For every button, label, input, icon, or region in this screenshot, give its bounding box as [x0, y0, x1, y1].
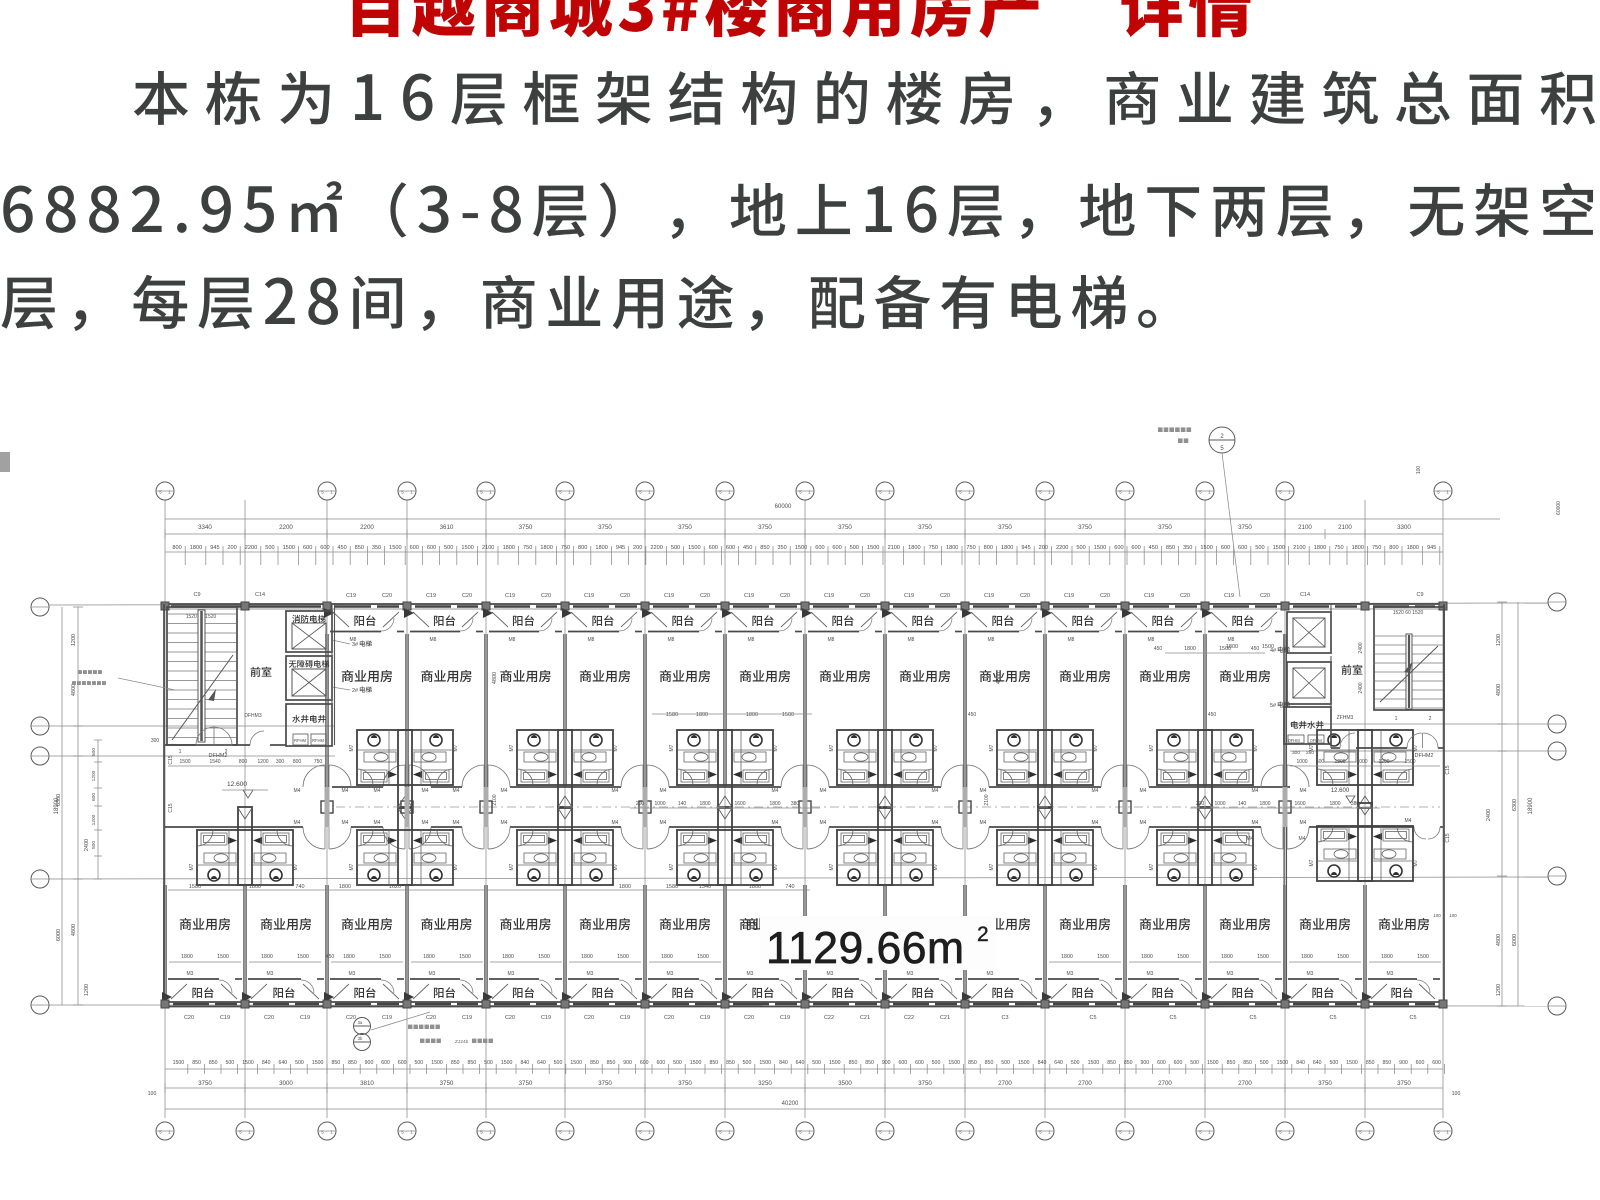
- svg-text:1500: 1500: [431, 1060, 443, 1066]
- svg-text:M8: M8: [828, 637, 835, 643]
- svg-text:1500: 1500: [1346, 1060, 1358, 1066]
- svg-text:2: 2: [1429, 716, 1432, 722]
- svg-text:C20: C20: [426, 1015, 436, 1021]
- svg-text:2100: 2100: [888, 545, 900, 551]
- svg-text:M4: M4: [453, 820, 460, 826]
- svg-text:M7: M7: [613, 744, 619, 751]
- svg-text:M4: M4: [422, 788, 429, 794]
- svg-text:5: 5: [1220, 446, 1224, 452]
- svg-text:850: 850: [1227, 1060, 1236, 1066]
- svg-text:C20: C20: [584, 1015, 594, 1021]
- svg-text:1620: 1620: [389, 884, 401, 890]
- svg-text:C20: C20: [700, 593, 710, 599]
- svg-text:3750: 3750: [1397, 1080, 1411, 1087]
- svg-text:M4: M4: [1300, 788, 1307, 794]
- svg-text:1500: 1500: [501, 1060, 513, 1066]
- svg-text:M8: M8: [988, 637, 995, 643]
- svg-text:945: 945: [1427, 545, 1436, 551]
- svg-text:1500: 1500: [1207, 1060, 1219, 1066]
- svg-text:500: 500: [295, 1060, 304, 1066]
- svg-text:5: 5: [239, 1130, 242, 1135]
- svg-text:600: 600: [1432, 1060, 1441, 1066]
- svg-text:1800: 1800: [661, 954, 673, 960]
- svg-text:4800: 4800: [996, 672, 1002, 684]
- svg-text:M8: M8: [430, 637, 437, 643]
- svg-text:3810: 3810: [360, 1080, 374, 1087]
- svg-text:1: 1: [1128, 1130, 1131, 1135]
- svg-text:C19: C19: [505, 593, 515, 599]
- svg-text:M8: M8: [908, 637, 915, 643]
- svg-text:5: 5: [799, 1130, 802, 1135]
- svg-text:500: 500: [225, 1060, 234, 1066]
- svg-text:1500: 1500: [312, 1060, 324, 1066]
- svg-text:800: 800: [172, 545, 181, 551]
- svg-text:3500: 3500: [838, 1080, 852, 1087]
- svg-text:C9: C9: [1416, 592, 1423, 598]
- svg-text:3750: 3750: [519, 524, 533, 531]
- svg-text:100: 100: [1416, 466, 1422, 475]
- svg-text:640: 640: [537, 1060, 546, 1066]
- svg-text:3b: 3b: [358, 1036, 363, 1041]
- svg-text:1800: 1800: [1407, 545, 1419, 551]
- svg-text:600: 600: [381, 1060, 390, 1066]
- svg-text:C19: C19: [744, 593, 754, 599]
- svg-text:C15: C15: [168, 803, 174, 812]
- svg-text:M4: M4: [501, 820, 508, 826]
- svg-text:1800: 1800: [503, 545, 515, 551]
- svg-text:1: 1: [1208, 490, 1211, 495]
- svg-text:1: 1: [808, 490, 811, 495]
- svg-text:850: 850: [607, 1060, 616, 1066]
- svg-text:M4: M4: [1300, 820, 1307, 826]
- svg-text:1500: 1500: [173, 1060, 185, 1066]
- svg-text:C20: C20: [780, 593, 790, 599]
- svg-text:100: 100: [1449, 913, 1457, 918]
- svg-text:850: 850: [331, 1060, 340, 1066]
- svg-text:0FHM: 0FHM: [1310, 738, 1322, 743]
- svg-text:1800: 1800: [339, 884, 351, 890]
- svg-text:C19: C19: [462, 1015, 472, 1021]
- svg-text:1500: 1500: [1097, 954, 1109, 960]
- svg-text:C19: C19: [346, 593, 356, 599]
- svg-text:1800: 1800: [1301, 954, 1313, 960]
- svg-text:5: 5: [719, 490, 722, 495]
- svg-text:1800: 1800: [261, 954, 273, 960]
- svg-text:450: 450: [743, 545, 752, 551]
- svg-text:M4: M4: [932, 788, 939, 794]
- svg-text:1: 1: [489, 490, 492, 495]
- svg-text:M7: M7: [1253, 863, 1259, 870]
- svg-text:M4: M4: [612, 788, 619, 794]
- svg-text:1500: 1500: [242, 1060, 254, 1066]
- svg-text:M4: M4: [612, 820, 619, 826]
- svg-text:600: 600: [1238, 545, 1247, 551]
- svg-text:850: 850: [1166, 545, 1175, 551]
- svg-text:M3: M3: [429, 971, 436, 977]
- svg-text:2200: 2200: [360, 524, 374, 531]
- svg-text:1: 1: [1128, 490, 1131, 495]
- svg-text:C15: C15: [168, 755, 174, 764]
- svg-text:1800: 1800: [343, 954, 355, 960]
- svg-text:5#: 5#: [1270, 703, 1277, 709]
- svg-text:5: 5: [959, 1130, 962, 1135]
- svg-text:3750: 3750: [758, 524, 772, 531]
- svg-text:C20: C20: [1020, 593, 1030, 599]
- svg-text:M7: M7: [349, 744, 355, 751]
- svg-text:600: 600: [398, 1060, 407, 1066]
- svg-text:2700: 2700: [998, 1080, 1012, 1087]
- svg-text:1500: 1500: [379, 954, 391, 960]
- svg-text:2400: 2400: [84, 839, 90, 851]
- svg-text:5: 5: [1359, 1130, 1362, 1135]
- svg-text:740: 740: [295, 884, 304, 890]
- svg-text:1500: 1500: [1219, 646, 1231, 652]
- svg-text:840: 840: [1296, 1060, 1305, 1066]
- svg-text:1600: 1600: [1294, 801, 1305, 807]
- svg-text:1800: 1800: [540, 545, 552, 551]
- svg-text:850: 850: [849, 1060, 858, 1066]
- svg-text:3750: 3750: [838, 524, 852, 531]
- svg-text:60000: 60000: [775, 504, 792, 510]
- svg-text:5: 5: [879, 1130, 882, 1135]
- svg-text:C19: C19: [1064, 593, 1074, 599]
- svg-text:740: 740: [785, 884, 794, 890]
- svg-text:C5: C5: [1169, 1015, 1176, 1021]
- svg-text:C20: C20: [505, 1015, 515, 1021]
- svg-text:M4: M4: [1140, 820, 1147, 826]
- svg-text:M8: M8: [748, 637, 755, 643]
- svg-text:2200: 2200: [650, 545, 662, 551]
- svg-text:1800: 1800: [595, 545, 607, 551]
- svg-text:1200: 1200: [84, 984, 90, 996]
- svg-text:500: 500: [91, 748, 97, 756]
- svg-text:0FHM: 0FHM: [1288, 738, 1300, 743]
- svg-text:3750: 3750: [918, 1080, 932, 1087]
- svg-text:5: 5: [321, 490, 324, 495]
- svg-text:1800: 1800: [749, 884, 761, 890]
- svg-text:M3: M3: [1227, 971, 1234, 977]
- svg-text:2100: 2100: [492, 794, 498, 805]
- svg-text:850: 850: [726, 1060, 735, 1066]
- svg-text:1500: 1500: [688, 545, 700, 551]
- svg-text:C20: C20: [346, 1015, 356, 1021]
- svg-text:450: 450: [968, 712, 977, 718]
- svg-text:M4: M4: [374, 820, 381, 826]
- svg-text:850: 850: [451, 1060, 460, 1066]
- svg-text:1800: 1800: [1221, 954, 1233, 960]
- svg-text:C19: C19: [541, 1015, 551, 1021]
- svg-text:600: 600: [1221, 545, 1230, 551]
- svg-text:1: 1: [648, 490, 651, 495]
- svg-text:1500: 1500: [782, 712, 794, 718]
- svg-text:850: 850: [968, 1060, 977, 1066]
- svg-text:2100: 2100: [1338, 524, 1352, 531]
- svg-text:1: 1: [1288, 490, 1291, 495]
- svg-text:850: 850: [1124, 1060, 1133, 1066]
- svg-text:3a: 3a: [358, 1020, 363, 1025]
- svg-text:C9: C9: [193, 592, 200, 598]
- svg-text:5: 5: [480, 1130, 483, 1135]
- svg-text:600: 600: [1174, 1060, 1183, 1066]
- svg-text:800: 800: [1389, 545, 1398, 551]
- svg-text:1: 1: [968, 490, 971, 495]
- svg-text:450: 450: [326, 954, 335, 960]
- svg-text:C22: C22: [824, 1015, 834, 1021]
- svg-text:200: 200: [1196, 801, 1205, 807]
- svg-text:640: 640: [796, 1060, 805, 1066]
- svg-text:1500: 1500: [1337, 954, 1349, 960]
- svg-text:M7: M7: [293, 863, 299, 870]
- svg-text:850: 850: [209, 1060, 218, 1066]
- svg-text:850: 850: [192, 1060, 201, 1066]
- svg-text:M4: M4: [772, 788, 779, 794]
- svg-text:1: 1: [1208, 1130, 1211, 1135]
- svg-text:M7: M7: [1413, 859, 1419, 866]
- svg-text:3250: 3250: [758, 1080, 772, 1087]
- svg-text:3610: 3610: [440, 524, 454, 531]
- svg-text:C21: C21: [940, 1015, 950, 1021]
- svg-text:4800: 4800: [1496, 684, 1502, 696]
- svg-text:M7: M7: [669, 744, 675, 751]
- svg-text:3750: 3750: [198, 1080, 212, 1087]
- svg-text:C20: C20: [1180, 593, 1190, 599]
- svg-text:1540: 1540: [209, 759, 220, 765]
- svg-text:M7: M7: [669, 863, 675, 870]
- svg-text:3750: 3750: [1318, 1080, 1332, 1087]
- svg-text:750: 750: [1334, 545, 1343, 551]
- svg-text:1500: 1500: [179, 759, 190, 765]
- svg-text:1: 1: [888, 490, 891, 495]
- svg-text:1500: 1500: [1177, 954, 1189, 960]
- svg-text:M4: M4: [1092, 820, 1099, 826]
- svg-text:M7: M7: [1253, 744, 1259, 751]
- svg-text:6300: 6300: [1512, 799, 1518, 811]
- svg-text:640: 640: [278, 1060, 287, 1066]
- svg-text:300: 300: [151, 738, 160, 744]
- svg-text:600: 600: [898, 1060, 907, 1066]
- svg-text:C19: C19: [620, 1015, 630, 1021]
- svg-text:850: 850: [760, 545, 769, 551]
- svg-text:945: 945: [210, 545, 219, 551]
- svg-text:100: 100: [148, 1091, 157, 1097]
- svg-text:3750: 3750: [918, 524, 932, 531]
- svg-text:1500: 1500: [1277, 1060, 1289, 1066]
- svg-text:1800: 1800: [190, 545, 202, 551]
- svg-text:1: 1: [330, 1130, 333, 1135]
- svg-text:1500: 1500: [948, 1060, 960, 1066]
- svg-text:M4: M4: [453, 788, 460, 794]
- svg-text:5: 5: [799, 490, 802, 495]
- svg-text:1: 1: [1048, 490, 1051, 495]
- svg-text:5: 5: [1039, 490, 1042, 495]
- svg-text:1500: 1500: [690, 1060, 702, 1066]
- svg-text:5: 5: [1279, 490, 1282, 495]
- svg-text:C20: C20: [382, 593, 392, 599]
- svg-text:1800: 1800: [1381, 954, 1393, 960]
- svg-text:1340: 1340: [699, 884, 711, 890]
- svg-text:1500: 1500: [1018, 1060, 1030, 1066]
- svg-text:1: 1: [248, 1130, 251, 1135]
- svg-text:500: 500: [1076, 545, 1085, 551]
- svg-text:850: 850: [1382, 1060, 1391, 1066]
- svg-text:C22: C22: [904, 1015, 914, 1021]
- svg-text:945: 945: [616, 545, 625, 551]
- svg-text:100: 100: [1433, 913, 1441, 918]
- svg-text:M8: M8: [509, 637, 516, 643]
- svg-text:250: 250: [1306, 750, 1314, 756]
- svg-text:1000: 1000: [1296, 759, 1307, 765]
- svg-text:840: 840: [779, 1060, 788, 1066]
- svg-text:2400: 2400: [1358, 682, 1364, 693]
- svg-text:3750: 3750: [598, 1080, 612, 1087]
- svg-text:1500: 1500: [459, 954, 471, 960]
- svg-text:6300: 6300: [56, 794, 62, 806]
- svg-text:1200: 1200: [91, 770, 97, 781]
- svg-text:1800: 1800: [1314, 545, 1326, 551]
- svg-text:500: 500: [554, 1060, 563, 1066]
- svg-text:C19: C19: [1144, 593, 1154, 599]
- svg-text:C3: C3: [1001, 1015, 1008, 1021]
- svg-text:2#: 2#: [352, 688, 359, 694]
- svg-text:1800: 1800: [908, 545, 920, 551]
- svg-text:C15: C15: [1445, 833, 1451, 842]
- svg-text:M7: M7: [1149, 863, 1155, 870]
- svg-text:1800: 1800: [769, 801, 780, 807]
- svg-text:M7: M7: [773, 744, 779, 751]
- svg-text:1500: 1500: [867, 545, 879, 551]
- svg-text:3750: 3750: [1078, 524, 1092, 531]
- svg-text:M8: M8: [668, 637, 675, 643]
- svg-text:900: 900: [1399, 1060, 1408, 1066]
- svg-text:M7: M7: [829, 744, 835, 751]
- svg-text:900: 900: [365, 1060, 374, 1066]
- svg-text:2100: 2100: [1298, 524, 1312, 531]
- svg-text:640: 640: [1313, 1060, 1322, 1066]
- svg-text:3750: 3750: [998, 524, 1012, 531]
- svg-text:18900: 18900: [1528, 797, 1534, 814]
- svg-text:RFHM: RFHM: [312, 738, 325, 743]
- svg-text:1500: 1500: [217, 954, 229, 960]
- svg-text:500: 500: [1071, 1060, 1080, 1066]
- svg-text:5: 5: [959, 490, 962, 495]
- svg-text:M4: M4: [660, 788, 667, 794]
- svg-text:1800: 1800: [619, 884, 631, 890]
- svg-text:M7: M7: [773, 863, 779, 870]
- svg-text:500: 500: [91, 841, 97, 849]
- svg-text:750: 750: [561, 545, 570, 551]
- svg-text:500: 500: [444, 545, 453, 551]
- svg-text:C19: C19: [664, 593, 674, 599]
- svg-text:5: 5: [159, 490, 162, 495]
- svg-text:C5: C5: [1409, 1015, 1416, 1021]
- svg-text:1: 1: [489, 1130, 492, 1135]
- svg-text:1800: 1800: [699, 801, 710, 807]
- svg-text:M4: M4: [1405, 818, 1412, 824]
- svg-text:M4: M4: [342, 820, 349, 826]
- svg-text:500: 500: [812, 1060, 821, 1066]
- svg-text:M4: M4: [342, 788, 349, 794]
- svg-text:500: 500: [1190, 1060, 1199, 1066]
- svg-text:M7: M7: [1149, 744, 1155, 751]
- svg-text:M4: M4: [1092, 788, 1099, 794]
- svg-text:1000: 1000: [654, 801, 665, 807]
- svg-text:M8: M8: [1068, 637, 1075, 643]
- svg-text:945: 945: [1021, 545, 1030, 551]
- svg-text:3340: 3340: [198, 524, 212, 531]
- svg-text:M7: M7: [1093, 744, 1099, 751]
- svg-text:600: 600: [815, 545, 824, 551]
- svg-text:C19: C19: [824, 593, 834, 599]
- svg-text:600: 600: [832, 545, 841, 551]
- svg-text:4800: 4800: [71, 684, 77, 696]
- svg-text:1500: 1500: [1094, 545, 1106, 551]
- svg-text:ZFHM3: ZFHM3: [1337, 715, 1354, 721]
- svg-text:6000: 6000: [1512, 934, 1518, 946]
- svg-text:2700: 2700: [1238, 1080, 1252, 1087]
- svg-text:500: 500: [1329, 1060, 1338, 1066]
- svg-text:M4: M4: [501, 788, 508, 794]
- svg-text:M8: M8: [1228, 637, 1235, 643]
- svg-text:1520 60 1520: 1520 60 1520: [1393, 610, 1424, 616]
- svg-text:450: 450: [1154, 646, 1163, 652]
- svg-text:1200: 1200: [257, 759, 268, 765]
- svg-text:1500: 1500: [283, 545, 295, 551]
- svg-text:M7: M7: [349, 863, 355, 870]
- svg-text:200: 200: [636, 801, 645, 807]
- svg-text:1500: 1500: [389, 545, 401, 551]
- svg-text:6000: 6000: [56, 929, 62, 941]
- svg-text:M3: M3: [1147, 971, 1154, 977]
- svg-text:2200: 2200: [279, 524, 293, 531]
- svg-text:5: 5: [1039, 1130, 1042, 1135]
- svg-text:850: 850: [1366, 1060, 1375, 1066]
- svg-text:C20: C20: [1260, 593, 1270, 599]
- svg-text:850: 850: [467, 1060, 476, 1066]
- svg-text:3300: 3300: [1397, 524, 1411, 531]
- svg-text:1800: 1800: [746, 712, 758, 718]
- svg-text:1500: 1500: [795, 545, 807, 551]
- svg-text:5: 5: [1199, 1130, 1202, 1135]
- svg-text:450: 450: [337, 545, 346, 551]
- svg-text:5: 5: [879, 490, 882, 495]
- svg-text:1580: 1580: [666, 712, 678, 718]
- svg-text:350: 350: [1183, 545, 1192, 551]
- svg-text:1000: 1000: [1214, 801, 1225, 807]
- svg-text:1800: 1800: [1259, 801, 1270, 807]
- svg-text:C19: C19: [220, 1015, 230, 1021]
- svg-text:600: 600: [410, 545, 419, 551]
- svg-text:1: 1: [1288, 1130, 1291, 1135]
- svg-text:500: 500: [414, 1060, 423, 1066]
- svg-text:100: 100: [1452, 1091, 1461, 1097]
- svg-text:1500: 1500: [570, 1060, 582, 1066]
- svg-text:600: 600: [656, 1060, 665, 1066]
- svg-text:C19: C19: [426, 593, 436, 599]
- svg-text:M7: M7: [933, 744, 939, 751]
- svg-text:200: 200: [1039, 545, 1048, 551]
- svg-text:M7: M7: [933, 863, 939, 870]
- svg-text:600: 600: [640, 1060, 649, 1066]
- svg-text:M3: M3: [508, 971, 515, 977]
- svg-text:C20: C20: [541, 593, 551, 599]
- svg-text:M4: M4: [1252, 788, 1259, 794]
- svg-text:5: 5: [559, 1130, 562, 1135]
- svg-text:C20: C20: [940, 593, 950, 599]
- svg-text:M4: M4: [1140, 788, 1147, 794]
- svg-text:1500: 1500: [538, 954, 550, 960]
- svg-text:800: 800: [984, 545, 993, 551]
- svg-text:5: 5: [1437, 490, 1440, 495]
